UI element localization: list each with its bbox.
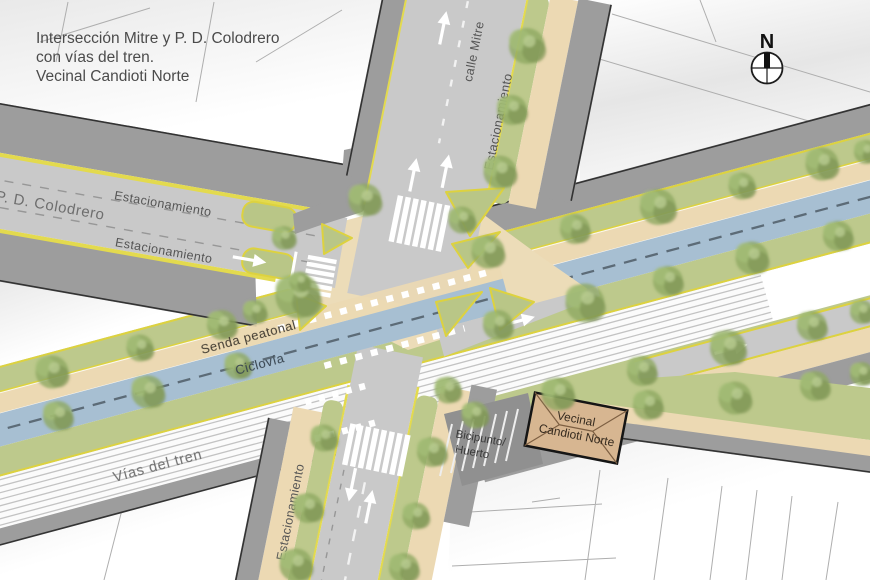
title-line-3: Vecinal Candioti Norte (36, 68, 189, 85)
title-line-2: con vías del tren. (36, 49, 154, 66)
title-line-1: Intersección Mitre y P. D. Colodrero (36, 30, 280, 47)
plan-drawing: P. D. Colodrero Estacionamiento Estacion… (0, 0, 870, 580)
north-label: N (760, 31, 774, 53)
urban-plan-canvas: P. D. Colodrero Estacionamiento Estacion… (0, 0, 870, 580)
